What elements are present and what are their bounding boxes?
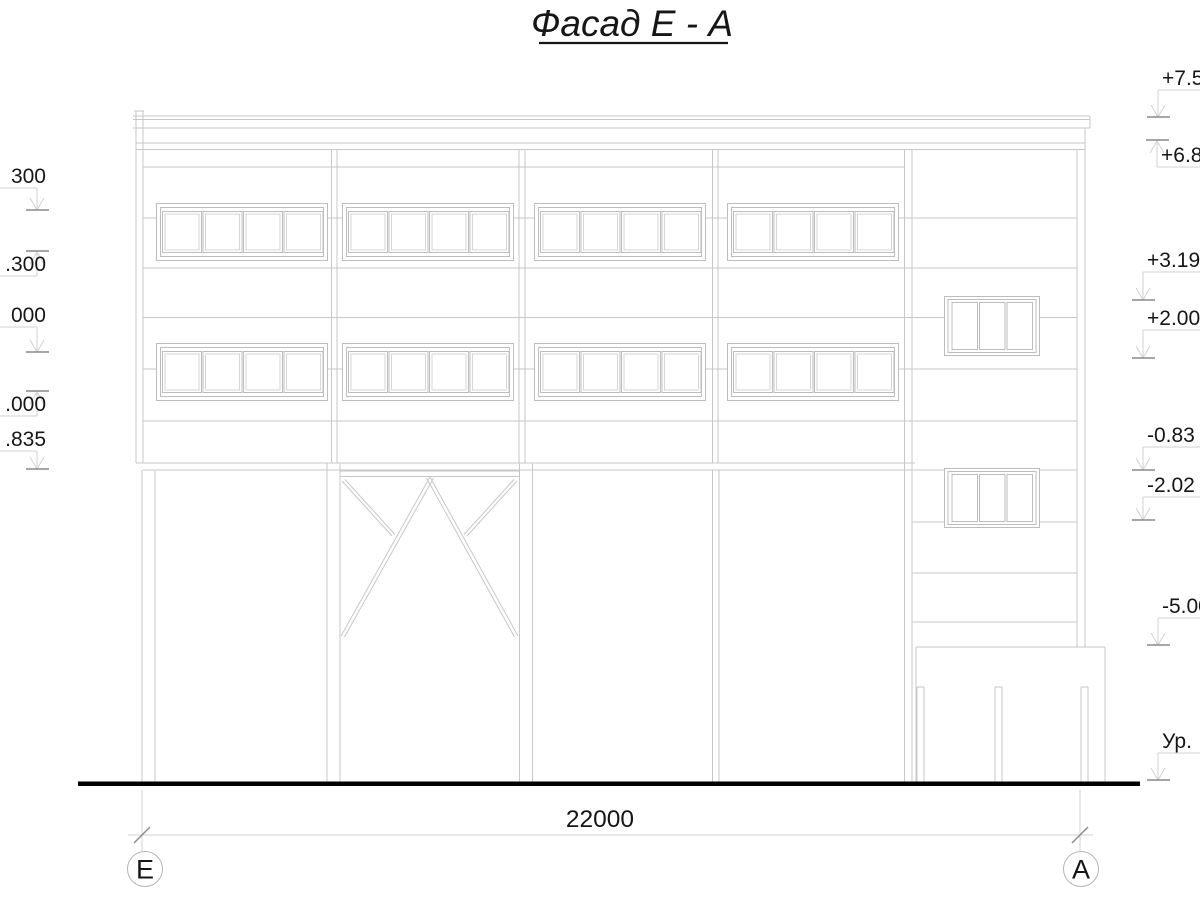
elevation-label: -0.83 [1147,424,1195,447]
elevation-label: .835 [5,428,46,451]
elevation-mark: +3.19 [1132,249,1200,300]
elevation-label: 000 [11,304,46,327]
axis-markers: Е А [128,852,1099,887]
facade-drawing: Фасад Е - А [0,0,1200,900]
elevation-mark: +6.8 [1146,140,1200,167]
axis-label-left: Е [136,855,154,885]
door-bracing [340,471,519,637]
elevation-mark: Ур. [1147,730,1200,780]
elevation-label: Ур. [1162,730,1192,753]
elevation-label: -2.02 [1147,474,1195,497]
window-group [728,344,899,401]
elevation-mark: .000 [0,391,49,416]
elevation-marks-right: +7.50+6.8+3.19+2.00-0.83-2.02-5.00Ур. [1132,67,1200,780]
elevation-marks-left: 300.300000.000.835 [0,165,49,469]
window-group [535,204,706,261]
right-wing-window-upper [945,297,1040,356]
elevation-mark: 300 [0,165,49,210]
roof-fascia [133,111,1090,150]
elevation-label: +6.8 [1161,144,1200,167]
dimension-label: 22000 [566,806,634,833]
columns [142,463,719,782]
window-group [535,344,706,401]
window-band-lower [157,344,899,401]
elevation-mark: .835 [0,428,49,469]
elevation-mark: -2.02 [1132,474,1200,520]
elevation-label: +7.50 [1162,67,1200,90]
window-group [343,204,514,261]
elevation-label: +3.19 [1147,249,1200,272]
elevation-label: .000 [5,393,46,416]
right-wing-window-lower [945,469,1040,528]
elevation-mark: -5.00 [1147,595,1200,645]
drawing-canvas: Фасад Е - А [0,0,1200,900]
title-block: Фасад Е - А [531,3,733,44]
window-group [157,344,328,401]
window-group [343,344,514,401]
window-group [157,204,328,261]
axis-label-right: А [1072,855,1090,885]
elevation-mark: +7.50 [1147,67,1200,117]
elevation-label: .300 [5,253,46,276]
elevation-mark: +2.00 [1132,307,1200,358]
elevation-mark: .300 [0,251,49,276]
dimension: 22000 [128,790,1093,851]
elevation-label: +2.00 [1147,307,1200,330]
elevation-label: 300 [11,165,46,188]
elevation-label: -5.00 [1162,595,1200,618]
facade-siding-lines [136,167,1077,470]
elevation-mark: -0.83 [1132,424,1200,470]
window-band-upper [157,204,899,261]
elevation-mark: 000 [0,304,49,352]
foundation [916,647,1105,782]
facade-left-wall-edge [136,111,143,463]
right-wing [912,128,1085,647]
ground-line [78,782,1140,787]
drawing-title: Фасад Е - А [531,3,733,44]
window-group [728,204,899,261]
